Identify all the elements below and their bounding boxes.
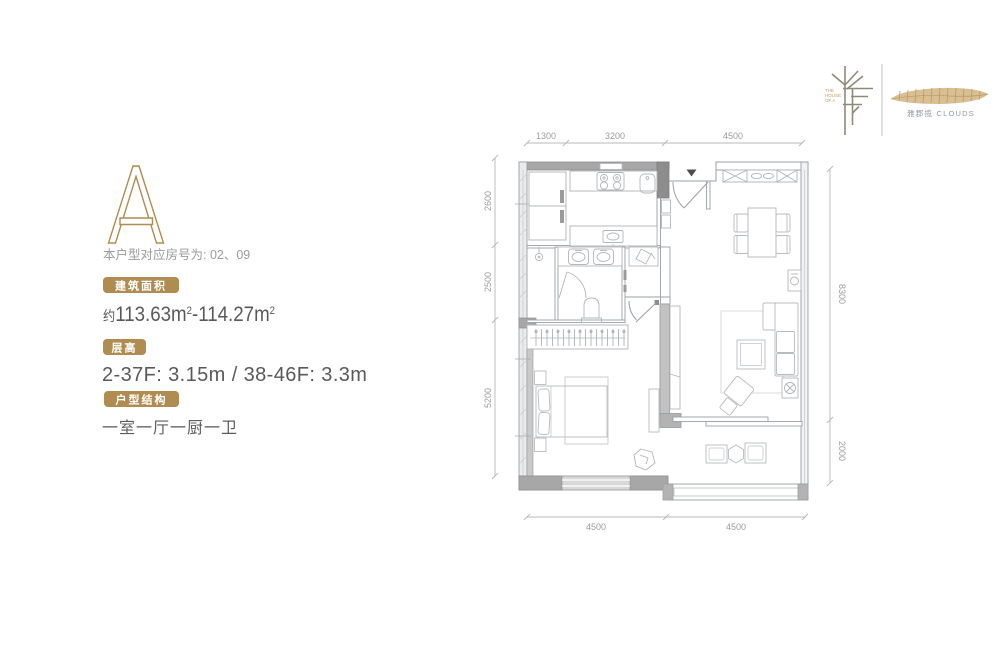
svg-text:层高: 层高 bbox=[111, 341, 138, 355]
svg-text:2-37F: 3.15m / 38-46F: 3.3m: 2-37F: 3.15m / 38-46F: 3.3m bbox=[102, 364, 367, 386]
svg-text:本户型对应房号为: 02、09: 本户型对应房号为: 02、09 bbox=[103, 247, 250, 262]
svg-text:4500: 4500 bbox=[726, 522, 746, 532]
svg-text:OF A: OF A bbox=[825, 98, 835, 103]
svg-text:1300: 1300 bbox=[536, 131, 556, 141]
svg-text:4500: 4500 bbox=[586, 522, 606, 532]
svg-text:约113.63m2-114.27m2: 约113.63m2-114.27m2 bbox=[103, 302, 275, 326]
svg-text:5200: 5200 bbox=[483, 388, 493, 408]
svg-text:4500: 4500 bbox=[723, 131, 743, 141]
svg-text:8300: 8300 bbox=[837, 284, 847, 304]
svg-text:雅郡揽 CLOUDS: 雅郡揽 CLOUDS bbox=[907, 108, 975, 118]
svg-text:2500: 2500 bbox=[483, 272, 493, 292]
svg-text:2600: 2600 bbox=[483, 191, 493, 211]
svg-text:3200: 3200 bbox=[605, 131, 625, 141]
svg-text:一室一厅一厨一卫: 一室一厅一厨一卫 bbox=[102, 419, 238, 437]
svg-text:建筑面积: 建筑面积 bbox=[115, 279, 167, 293]
svg-text:户型结构: 户型结构 bbox=[116, 393, 168, 407]
svg-text:2000: 2000 bbox=[837, 441, 847, 461]
